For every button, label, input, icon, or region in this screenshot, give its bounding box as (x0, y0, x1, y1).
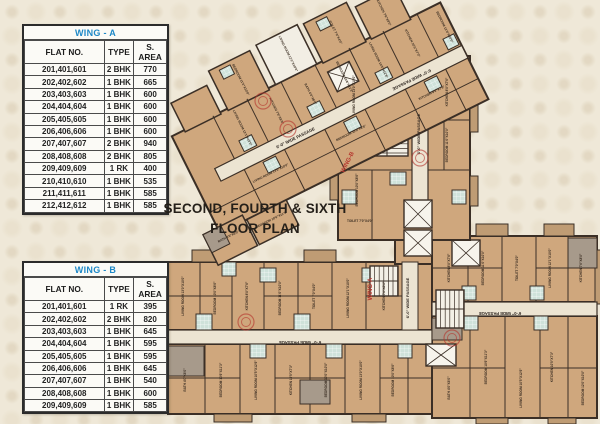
balcony (214, 414, 252, 422)
wing-b-table-title: WING - B (24, 263, 167, 277)
passage-label: 6'-0" WIDE PASSAGE (479, 311, 522, 316)
page-title-line1: SECOND, FOURTH & SIXTH (164, 201, 347, 216)
table-cell: 209,409,609 (25, 163, 105, 175)
table-row: 209,409,6091 RK400 (25, 163, 167, 175)
room-label: BEDROOM 10'0"X8'6" (355, 173, 359, 207)
room-label: KITCHEN 10'5"X7'3" (289, 364, 293, 395)
room-label: BEDROOM 11'0"X10'0" (278, 280, 282, 315)
room-label: KITCHEN 7'6"X8'0" (382, 281, 386, 310)
table-cell: 204,404,604 (25, 338, 105, 350)
table-cell: 1 RK (104, 301, 134, 313)
column-header: S. AREA (134, 278, 167, 301)
table-cell: 204,404,604 (25, 101, 105, 113)
column-header: FLAT NO. (25, 41, 105, 64)
balcony (476, 224, 508, 236)
table-cell: 208,408,608 (25, 387, 105, 399)
balcony (548, 418, 576, 424)
table-cell: 770 (134, 64, 167, 76)
room-label: BEDROOM 10'0"X8'6" (391, 363, 395, 397)
table-cell: 2 BHK (104, 150, 134, 162)
table-cell: 600 (134, 387, 167, 399)
table-cell: 595 (134, 350, 167, 362)
wing-b-table-grid: FLAT NO.TYPES. AREA201,401,6011 RK395202… (24, 277, 167, 412)
table-cell: 1 RK (104, 163, 134, 175)
table-cell: 1 BHK (104, 400, 134, 412)
balcony (470, 176, 478, 206)
table-cell: 540 (134, 375, 167, 387)
column-header: FLAT NO. (25, 278, 105, 301)
passage-label: 6'-0" WIDE PASSAGE (416, 113, 421, 154)
room-label: KITCHEN 8'0"X7'6" (447, 253, 451, 282)
table-cell: 201,401,601 (25, 301, 105, 313)
table-cell: 1 BHK (104, 362, 134, 374)
room-label: LIVING ROOM 12'1"X10'0" (548, 248, 552, 288)
table-cell: 395 (134, 301, 167, 313)
table-cell: 1 BHK (104, 387, 134, 399)
bathroom (260, 268, 276, 282)
table-cell: 1 BHK (104, 187, 134, 199)
table-cell: 1 BHK (104, 88, 134, 100)
room-label: BEDROOM 10'6"X11'3" (219, 362, 223, 397)
table-cell: 205,405,605 (25, 350, 105, 362)
table-row: 205,405,6051 BHK600 (25, 113, 167, 125)
table-cell: 940 (134, 138, 167, 150)
wing-a-table: WING - A FLAT NO.TYPES. AREA201,401,6012… (22, 24, 169, 215)
room-label: LIVING ROOM 10'5"X12'6" (519, 368, 523, 408)
room-label: LIVING ROOM 10'5"X12'6" (254, 360, 258, 400)
table-cell: 585 (134, 400, 167, 412)
room-label: LIVING ROOM 13'0"X10'0" (181, 276, 185, 316)
bathroom (534, 316, 548, 330)
table-cell: 207,407,607 (25, 138, 105, 150)
bathroom (452, 190, 466, 204)
table-cell: 207,407,607 (25, 375, 105, 387)
table-cell: 1 BHK (104, 125, 134, 137)
table-row: 204,404,6041 BHK595 (25, 338, 167, 350)
wing-a-table-title: WING - A (24, 26, 167, 40)
room-label: BEDROOM 12'0"X10'0" (581, 370, 585, 405)
table-cell: 535 (134, 175, 167, 187)
room-label: KITCHEN 10'5"X7'3" (550, 351, 554, 382)
table-row: 210,410,6101 BHK535 (25, 175, 167, 187)
bathroom (390, 172, 406, 185)
table-cell: 206,406,606 (25, 125, 105, 137)
table-cell: 205,405,605 (25, 113, 105, 125)
bathroom (250, 344, 266, 358)
table-cell: 1 BHK (104, 175, 134, 187)
page-title: SECOND, FOURTH & SIXTH FLOOR PLAN (157, 199, 353, 238)
table-cell: 202,402,602 (25, 313, 105, 325)
table-cell: 201,401,601 (25, 64, 105, 76)
balcony (544, 224, 574, 236)
page-title-line2: FLOOR PLAN (210, 221, 300, 236)
table-cell: 1 BHK (104, 200, 134, 212)
room-label: BEDROOM 11'0"X10'0" (481, 250, 485, 285)
table-row: 207,407,6072 BHK940 (25, 138, 167, 150)
wing-a-label: WING-A (368, 277, 374, 300)
table-row: 203,403,6031 BHK645 (25, 325, 167, 337)
table-cell: 600 (134, 101, 167, 113)
bathroom (294, 314, 310, 330)
table-cell: 1 BHK (104, 325, 134, 337)
table-cell: 595 (134, 338, 167, 350)
table-cell: 203,403,603 (25, 325, 105, 337)
passage-label: 6'-0" WIDE PASSAGE (405, 277, 410, 318)
wing-b-table: WING - B FLAT NO.TYPES. AREA201,401,6011… (22, 261, 169, 414)
table-cell: 1 BHK (104, 76, 134, 88)
room-label: BEDROOM 11'0"X10'0" (445, 127, 449, 162)
table-row: 203,403,6031 BHK600 (25, 88, 167, 100)
table-cell: 206,406,606 (25, 362, 105, 374)
room-label: KITCHEN 7'6"X8'0" (579, 253, 583, 282)
room-label: LIVING ROOM 13'0"X10'0" (359, 360, 363, 400)
table-row: 201,401,6012 BHK770 (25, 64, 167, 76)
bathroom (222, 262, 236, 276)
table-cell: 820 (134, 313, 167, 325)
table-cell: 600 (134, 88, 167, 100)
column-header: TYPE (104, 278, 134, 301)
table-cell: 665 (134, 76, 167, 88)
room-label: KITCHEN 8'0"X7'6" (445, 77, 449, 106)
room-label: LIVING ROOM 12'1"X10'0" (346, 278, 350, 318)
bathroom (464, 316, 478, 330)
table-cell: 600 (134, 113, 167, 125)
table-cell: 203,403,603 (25, 88, 105, 100)
bathroom (530, 286, 544, 300)
room-label: BATH 4'0"X6'0" (183, 368, 187, 392)
table-row: 212,412,6121 BHK585 (25, 200, 167, 212)
table-row: 211,411,6111 BHK585 (25, 187, 167, 199)
table-cell: 2 BHK (104, 64, 134, 76)
table-row: 206,406,6061 BHK600 (25, 125, 167, 137)
wing-a-table-grid: FLAT NO.TYPES. AREA201,401,6012 BHK77020… (24, 40, 167, 213)
table-cell: 805 (134, 150, 167, 162)
bathroom (196, 314, 212, 330)
table-cell: 210,410,610 (25, 175, 105, 187)
room-label: KITCHEN 8'0"X7'6" (245, 281, 249, 310)
room-label: BATH 4'0"X6'0" (447, 376, 451, 400)
table-cell: 2 BHK (104, 313, 134, 325)
table-row: 207,407,6071 BHK540 (25, 375, 167, 387)
table-cell: 1 BHK (104, 375, 134, 387)
table-cell: 2 BHK (104, 138, 134, 150)
table-row: 208,408,6081 BHK600 (25, 387, 167, 399)
balcony (476, 418, 508, 424)
table-row: 205,405,6051 BHK595 (25, 350, 167, 362)
bathroom (326, 344, 342, 358)
table-cell: 1 BHK (104, 350, 134, 362)
table-cell: 1 BHK (104, 113, 134, 125)
table-row: 206,406,6061 BHK645 (25, 362, 167, 374)
column-header: TYPE (104, 41, 134, 64)
floor-plan-page: 6'-0" WIDE PASSAGE6'-0" WIDE PASSAGELIVI… (0, 0, 600, 424)
table-row: 202,402,6022 BHK820 (25, 313, 167, 325)
table-cell: 211,411,611 (25, 187, 105, 199)
table-cell: 208,408,608 (25, 150, 105, 162)
passage-label: 6'-0" WIDE PASSAGE (279, 340, 322, 345)
room-label: TOILET 7'0"X4'0" (312, 283, 316, 309)
room-label: BEDROOM 10'0"X8'6" (213, 281, 217, 315)
table-row: 208,408,6082 BHK805 (25, 150, 167, 162)
table-cell: 645 (134, 325, 167, 337)
bathroom (398, 344, 412, 358)
table-row: 209,409,6091 BHK585 (25, 400, 167, 412)
room-label: LIVING ROOM 13'0"X10'0" (352, 75, 356, 115)
table-row: 204,404,6041 BHK600 (25, 101, 167, 113)
table-row: 201,401,6011 RK395 (25, 301, 167, 313)
table-cell: 1 BHK (104, 101, 134, 113)
table-cell: 400 (134, 163, 167, 175)
table-cell: 1 BHK (104, 338, 134, 350)
table-cell: 645 (134, 362, 167, 374)
balcony (352, 414, 386, 422)
table-cell: 212,412,612 (25, 200, 105, 212)
room-label: BEDROOM 10'6"X11'3" (484, 349, 488, 384)
room-label: TOILET 7'0"X4'0" (515, 255, 519, 281)
balcony (304, 250, 336, 262)
table-cell: 202,402,602 (25, 76, 105, 88)
room-label: BEDROOM 12'0"X10'0" (324, 362, 328, 397)
table-cell: 209,409,609 (25, 400, 105, 412)
table-cell: 600 (134, 125, 167, 137)
column-header: S. AREA (134, 41, 167, 64)
table-cell: 585 (134, 187, 167, 199)
table-row: 202,402,6021 BHK665 (25, 76, 167, 88)
